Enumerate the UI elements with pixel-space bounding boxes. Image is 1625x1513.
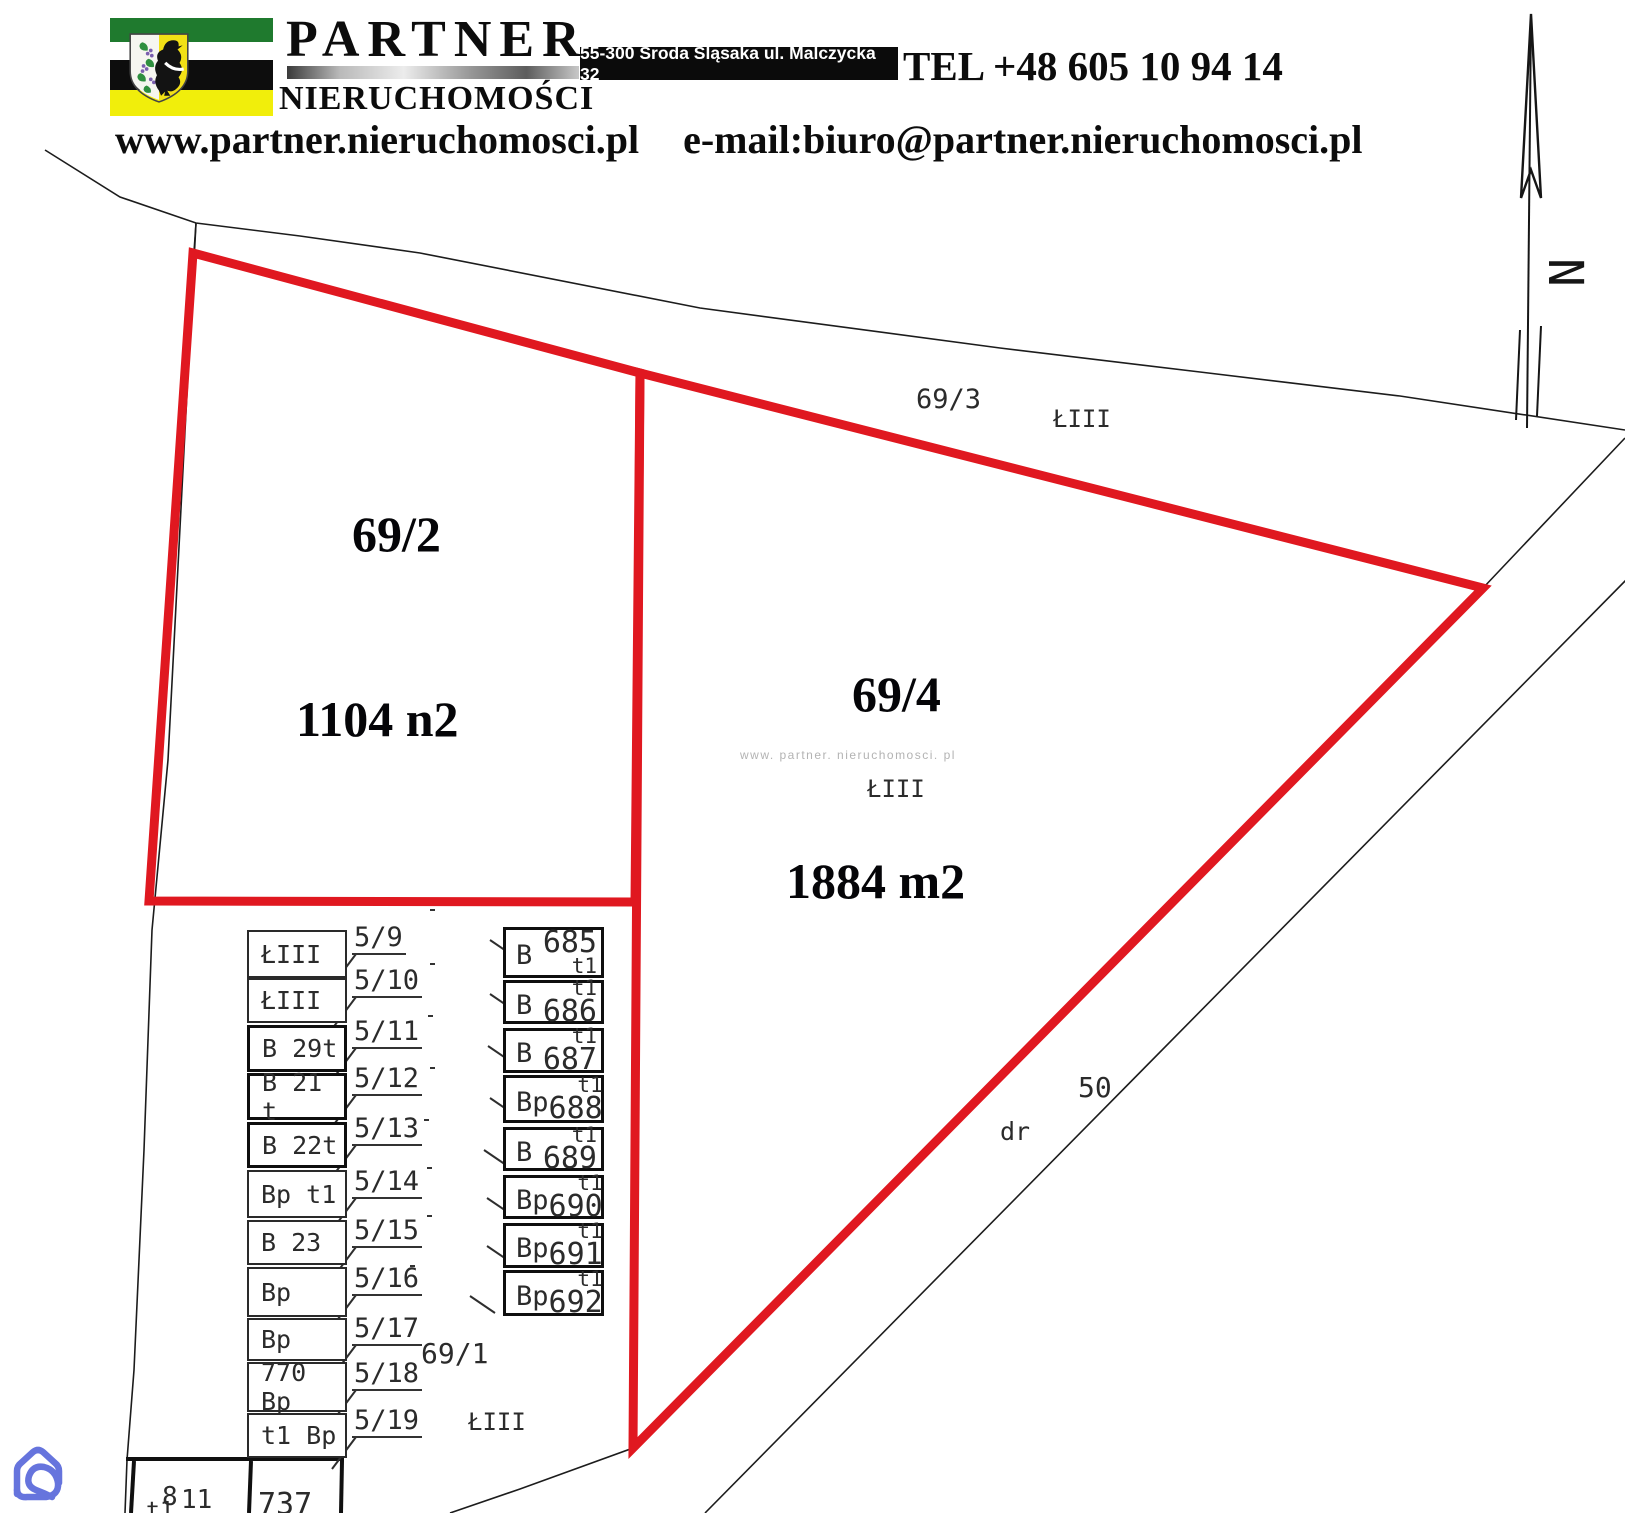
brand-subtitle: NIERUCHOMOŚCI (279, 80, 594, 118)
parcel-cell: B 21 t (247, 1073, 347, 1120)
website-url: www.partner.nieruchomosci.pl (115, 116, 639, 163)
land-use-code: B (516, 940, 543, 971)
parcel-number-label: 5/18 (352, 1358, 422, 1391)
parcel-number-label (410, 1265, 415, 1267)
bottom-row-left-edge (131, 1461, 134, 1513)
road-edge-upper (450, 438, 1625, 1513)
land-use-code: B (516, 990, 543, 1021)
parcel-cell: Bp (247, 1318, 347, 1361)
parcel-number-label (430, 1067, 435, 1069)
road-edge-lower (705, 576, 1625, 1513)
land-use-code: Bp (516, 1233, 549, 1264)
parcel-number-label: 5/16 (352, 1263, 422, 1296)
scanned-plot-map-flyer: N (0, 0, 1625, 1513)
map-label: ŁIII (468, 1408, 526, 1436)
land-use-code: Bp (516, 1087, 549, 1118)
portal-watermark-icon (17, 1450, 59, 1497)
plot-69-4-outline (633, 373, 1483, 1448)
parcel-number-label: 5/17 (352, 1313, 422, 1346)
address-badge: 55-300 Środa Śląsaka ul. Malczycka 32 (580, 47, 898, 80)
north-letter: N (1537, 258, 1593, 287)
north-arrow: N (1516, 14, 1593, 428)
map-label: dr (1000, 1117, 1030, 1146)
parcel-cell: B 23 (247, 1220, 347, 1265)
parcel-number-label: 5/19 (352, 1405, 422, 1438)
plot-id-area-label: 69/4 (852, 665, 941, 723)
parcel-number-label: 5/11 (352, 1016, 422, 1049)
land-use-code: Bp (516, 1185, 549, 1216)
parcel-cell: Bp (247, 1267, 347, 1317)
parcel-cell: ŁIII (247, 930, 347, 978)
watermark-text: www. partner. nieruchomosci. pl (740, 748, 956, 762)
parcel-number-label: 5/12 (352, 1063, 422, 1096)
parcel-codes: t1686 (543, 979, 597, 1026)
map-label: 69/1 (421, 1337, 488, 1370)
parcel-cell: B 29t (247, 1025, 347, 1072)
parcel-cell: Bt1689 (503, 1127, 604, 1171)
parcel-codes: t1689 (543, 1126, 597, 1173)
parcel-number-label: 5/13 (352, 1113, 422, 1146)
north-boundary-line (45, 150, 1625, 430)
parcel-codes: t1688 (549, 1076, 603, 1123)
plot-id-area-label: 1104 n2 (296, 690, 459, 748)
map-label: 737 (258, 1487, 312, 1513)
parcel-number-label (428, 1015, 433, 1017)
phone-number: TEL +48 605 10 94 14 (903, 42, 1283, 90)
plot-69-2-outline (149, 253, 640, 902)
parcel-cell: B685t1 (503, 927, 604, 978)
parcel-number-label: 5/9 (352, 922, 406, 955)
parcel-codes: t1692 (549, 1270, 603, 1317)
plot-id-area-label: 1884 m2 (786, 852, 965, 910)
parcel-cell: Bt1687 (503, 1028, 604, 1073)
parcel-cell: t1 Bp (247, 1413, 347, 1458)
parcel-cell: Bpt1691 (503, 1223, 604, 1268)
map-label: ŁIII (867, 775, 925, 803)
parcel-cell: Bpt1690 (503, 1175, 604, 1219)
parcel-number-label (430, 963, 435, 965)
map-label: 69/3 (916, 384, 981, 415)
brand-name: PARTNER (286, 10, 588, 69)
map-label: 50 (1078, 1071, 1112, 1104)
parcel-number-label (427, 1215, 432, 1217)
bottom-row-divider (249, 1461, 251, 1513)
parcel-number-label: 5/14 (352, 1166, 422, 1199)
parcel-cell: Bpt1692 (503, 1270, 604, 1316)
parcel-codes: t1690 (549, 1174, 603, 1221)
parcel-number-label: 5/15 (352, 1215, 422, 1248)
land-use-code: B (516, 1038, 543, 1069)
coat-of-arms-shield (128, 32, 190, 104)
map-label: ŁIII (1053, 405, 1111, 433)
plot-id-area-label: 69/2 (352, 505, 441, 563)
parcel-cell: 770 Bp (247, 1362, 347, 1412)
parcel-cell: Bpt1688 (503, 1075, 604, 1123)
bottom-row-right-edge (341, 1461, 342, 1513)
parcel-codes: 685t1 (543, 929, 597, 976)
contact-line: www.partner.nieruchomosci.pl e-mail:biur… (115, 116, 1363, 163)
parcel-number-label (427, 1167, 432, 1169)
parcel-cell: Bp t1 (247, 1170, 347, 1218)
parcel-cell: ŁIII (247, 978, 347, 1023)
map-label: 11 (181, 1485, 212, 1513)
parcel-codes: t1691 (549, 1222, 603, 1269)
brand-divider-bar (287, 66, 579, 79)
parcel-number-label (430, 909, 435, 911)
land-use-code: B (516, 1137, 543, 1168)
parcel-number-label (424, 1119, 429, 1121)
parcel-cell: Bt1686 (503, 980, 604, 1024)
land-use-code: Bp (516, 1281, 549, 1312)
parcel-cell: B 22t (247, 1122, 347, 1168)
parcel-number-label: 5/10 (352, 965, 422, 998)
parcel-codes: t1687 (543, 1027, 597, 1074)
map-label: 8 (162, 1482, 178, 1512)
email-address: e-mail:biuro@partner.nieruchomosci.pl (683, 116, 1362, 163)
